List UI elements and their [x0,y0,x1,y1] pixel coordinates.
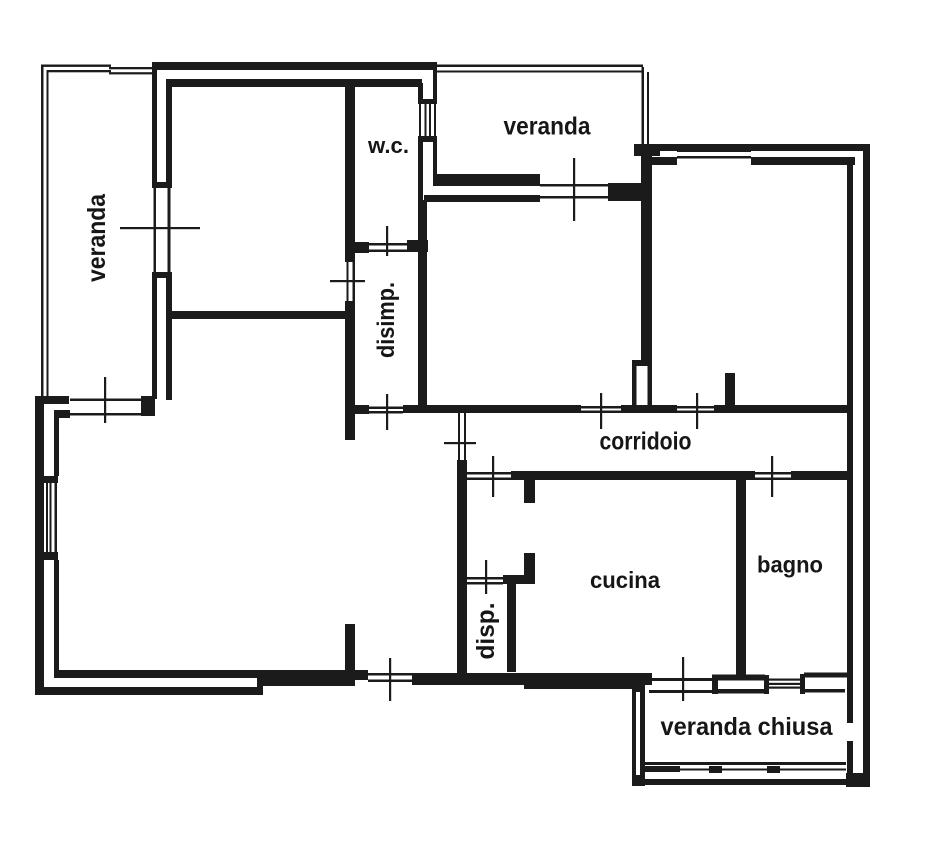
svg-text:bagno: bagno [757,552,823,578]
svg-text:cucina: cucina [590,567,660,593]
svg-text:w.c.: w.c. [367,133,409,158]
svg-text:veranda: veranda [83,193,111,282]
svg-text:veranda: veranda [504,113,592,141]
svg-text:disimp.: disimp. [373,282,400,358]
svg-text:disp.: disp. [472,603,500,660]
svg-text:corridoio: corridoio [600,428,692,456]
svg-text:veranda chiusa: veranda chiusa [661,713,834,741]
